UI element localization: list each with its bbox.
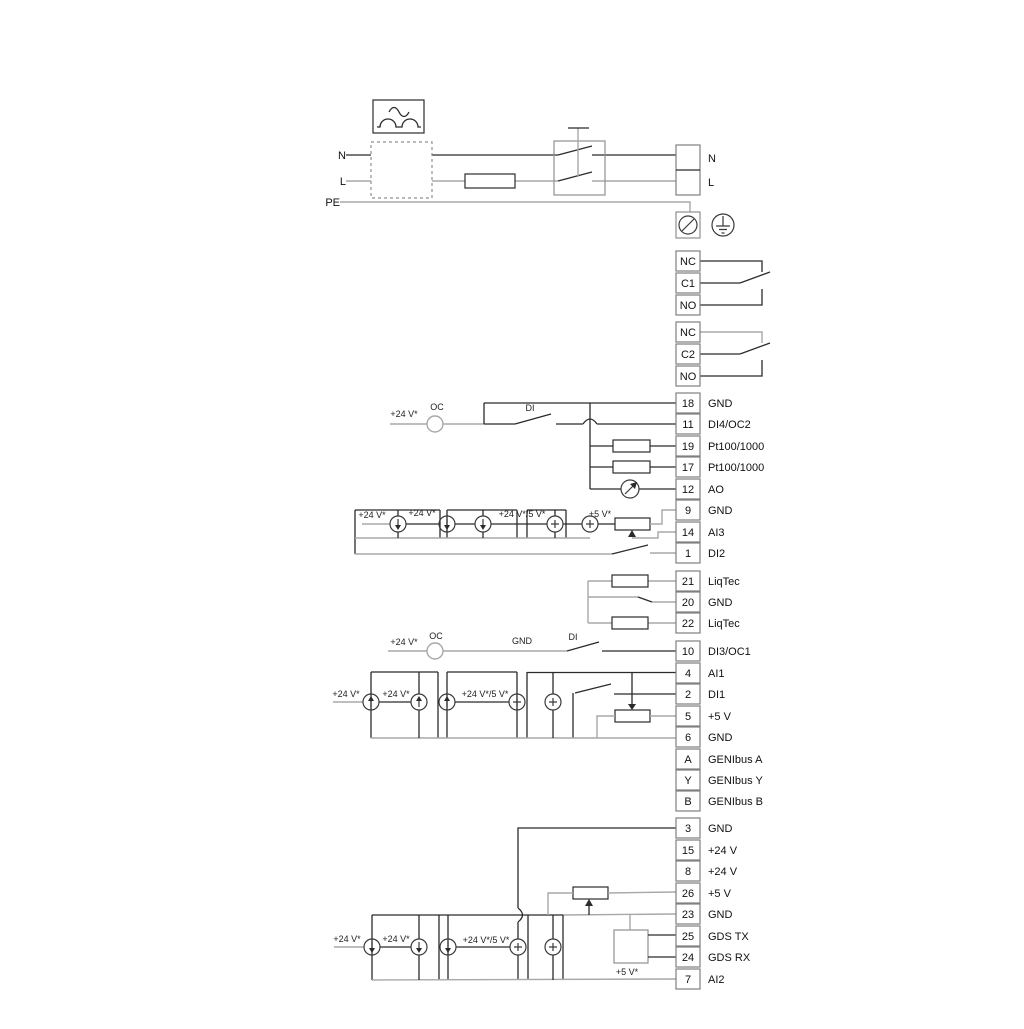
terminal-id: 18	[682, 398, 694, 410]
terminal-label: Pt100/1000	[708, 462, 764, 474]
terminal-label: LiqTec	[708, 576, 740, 588]
terminal-id: A	[684, 754, 692, 766]
terminal-id: 17	[682, 462, 694, 474]
terminal-l-label: L	[708, 177, 714, 189]
terminal-cell: NC	[676, 251, 700, 271]
v24-label: +24 V*	[382, 689, 410, 699]
terminal-id: C2	[681, 349, 695, 361]
terminal-id: 22	[682, 618, 694, 630]
terminal-label: GND	[708, 909, 733, 921]
wiring-diagram-page: N L PE N L +24 V*	[0, 0, 1024, 1024]
terminal-cell: NO	[676, 295, 700, 315]
terminal-n-label: N	[708, 153, 716, 165]
terminal-id: 26	[682, 888, 694, 900]
terminal-label: GENIbus A	[708, 754, 763, 766]
terminal-label: AI1	[708, 668, 725, 680]
v24-5-label: +24 V*/5 V*	[463, 935, 510, 945]
terminal-id: NO	[680, 300, 697, 312]
oc-label: OC	[429, 631, 443, 641]
terminal-id: 15	[682, 845, 694, 857]
label-l: L	[340, 176, 346, 188]
terminal-id: 10	[682, 646, 694, 658]
v24-label: +24 V*	[358, 510, 386, 520]
terminal-label: GDS TX	[708, 931, 749, 943]
v24-label: +24 V*	[390, 637, 418, 647]
label-n: N	[338, 150, 346, 162]
terminal-id: NC	[680, 256, 696, 268]
terminal-label: GENIbus Y	[708, 775, 763, 787]
v5-label: +5 V*	[616, 967, 639, 977]
terminal-cell: NO	[676, 366, 700, 386]
v5-label: +5 V*	[589, 509, 612, 519]
terminal-cell: C2	[676, 344, 700, 364]
terminal-label: +5 V	[708, 711, 732, 723]
terminal-id: 21	[682, 576, 694, 588]
terminal-label: GENIbus B	[708, 796, 763, 808]
terminal-label: GND	[708, 732, 733, 744]
terminal-cell: C1	[676, 273, 700, 293]
terminal-label: GND	[708, 823, 733, 835]
di-label: DI	[569, 632, 578, 642]
terminal-label: AO	[708, 484, 724, 496]
bottom-rail-ai2	[372, 979, 676, 980]
terminal-id: 7	[685, 974, 691, 986]
terminal-label: AI3	[708, 527, 725, 539]
rail-to-gnd23	[563, 914, 676, 915]
terminal-id: Y	[684, 775, 692, 787]
terminal-id: 3	[685, 823, 691, 835]
terminal-id: 8	[685, 866, 691, 878]
terminal-label: +24 V	[708, 845, 738, 857]
terminal-id: B	[684, 796, 691, 808]
terminal-id: 20	[682, 597, 694, 609]
terminal-id: NO	[680, 371, 697, 383]
terminal-label: GND	[708, 597, 733, 609]
terminal-label: AI2	[708, 974, 725, 986]
terminal-cell: NC	[676, 322, 700, 342]
terminal-id: 1	[685, 548, 691, 560]
gnd-label: GND	[512, 636, 533, 646]
v24-label: +24 V*	[390, 409, 418, 419]
terminal-label: GDS RX	[708, 952, 751, 964]
terminal-label: DI2	[708, 548, 725, 560]
terminal-id: 6	[685, 732, 691, 744]
terminal-label: DI3/OC1	[708, 646, 751, 658]
terminal-id: 12	[682, 484, 694, 496]
terminal-id: C1	[681, 278, 695, 290]
terminal-id: 2	[685, 689, 691, 701]
terminal-id: 14	[682, 527, 694, 539]
v24-5-label: +24 V*/5 V*	[462, 689, 509, 699]
terminal-id: NC	[680, 327, 696, 339]
terminal-label: +24 V	[708, 866, 738, 878]
terminal-label: +5 V	[708, 888, 732, 900]
terminal-label: GND	[708, 505, 733, 517]
terminal-id: 5	[685, 711, 691, 723]
oc-label: OC	[430, 402, 444, 412]
terminal-id: 19	[682, 441, 694, 453]
terminal-label: DI4/OC2	[708, 419, 751, 431]
label-pe: PE	[325, 197, 340, 209]
di-label: DI	[526, 403, 535, 413]
terminal-id: 4	[685, 668, 691, 680]
v24-label: +24 V*	[382, 934, 410, 944]
terminal-id: 24	[682, 952, 694, 964]
terminal-id: 11	[682, 419, 693, 431]
terminal-id: 9	[685, 505, 691, 517]
terminal-id: 23	[682, 909, 694, 921]
terminal-label: Pt100/1000	[708, 441, 764, 453]
terminal-label: DI1	[708, 689, 725, 701]
terminal-label: LiqTec	[708, 618, 740, 630]
wiring-diagram: N L PE N L +24 V*	[0, 0, 1024, 1024]
terminal-label: GND	[708, 398, 733, 410]
v24-label: +24 V*	[333, 934, 361, 944]
v24-label: +24 V*	[332, 689, 360, 699]
terminal-id: 25	[682, 931, 694, 943]
